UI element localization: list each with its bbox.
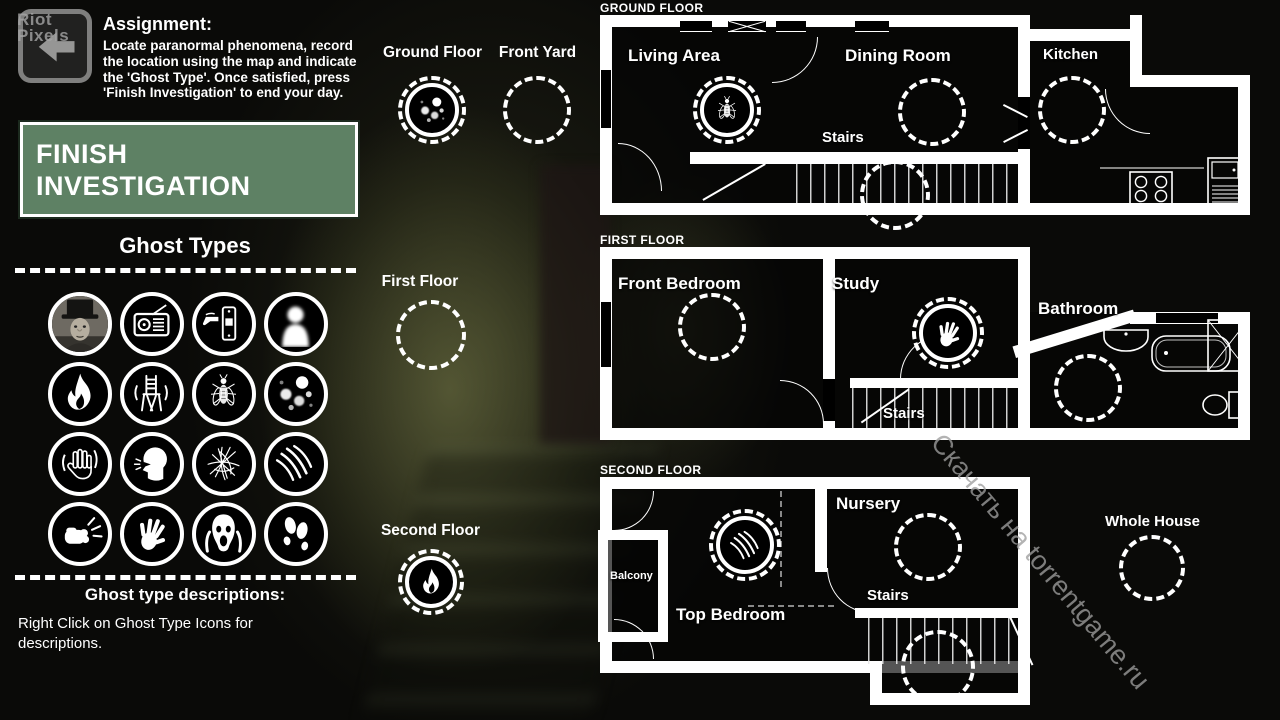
stair-treads xyxy=(852,388,1018,428)
riot-pixels-watermark: Riot Pixels xyxy=(17,12,69,44)
ghost-type-touch[interactable] xyxy=(48,432,112,496)
marker-nursery[interactable] xyxy=(894,513,962,581)
door-gap xyxy=(823,379,835,421)
bedroom-nursery-wall xyxy=(815,489,827,572)
window xyxy=(680,20,712,32)
marker-ground-floor[interactable] xyxy=(398,76,466,144)
ghost-type-claw-scratches[interactable] xyxy=(264,432,328,496)
window-x xyxy=(728,20,766,32)
ghost-type-fire[interactable] xyxy=(48,362,112,426)
marker-whole-house[interactable] xyxy=(1119,535,1185,601)
ghost-type-orbs[interactable] xyxy=(264,362,328,426)
marker-first-floor[interactable] xyxy=(396,300,466,370)
fire-icon xyxy=(405,556,457,608)
map-label-whole-house: Whole House xyxy=(1085,513,1220,530)
kitchen-fixtures xyxy=(1100,150,1250,212)
ghost-descriptions-hint: Right Click on Ghost Type Icons for desc… xyxy=(18,614,294,654)
ghost-descriptions-heading: Ghost type descriptions: xyxy=(0,585,370,605)
first-floor-plan: Front Bedroom Study Bathroom Stairs xyxy=(600,247,1250,440)
marker-front-yard[interactable] xyxy=(503,76,571,144)
room-label-stairs: Stairs xyxy=(822,129,864,146)
map-label-front-yard: Front Yard xyxy=(470,44,605,62)
ghost-type-footprints[interactable] xyxy=(264,502,328,566)
ground-floor-title: GROUND FLOOR xyxy=(600,1,703,15)
room-label-study: Study xyxy=(832,274,879,294)
ghost-type-flies[interactable] xyxy=(192,362,256,426)
marker-second-floor[interactable] xyxy=(398,549,464,615)
room-label-bathroom: Bathroom xyxy=(1038,299,1118,319)
orbs-icon xyxy=(405,83,459,137)
marker-top-bedroom[interactable] xyxy=(709,509,781,581)
finish-investigation-button[interactable]: FINISH INVESTIGATION xyxy=(20,122,358,217)
window-left xyxy=(600,302,612,367)
ghost-type-apparition-portrait[interactable] xyxy=(48,292,112,356)
second-floor-title: SECOND FLOOR xyxy=(600,463,701,477)
window-left xyxy=(600,70,612,128)
room-label-front-bedroom: Front Bedroom xyxy=(618,274,741,294)
app-window: Riot Pixels Скачать на torrentgame.ru As… xyxy=(0,0,1280,720)
marker-stairs-second[interactable] xyxy=(901,630,975,704)
ghost-type-handprint[interactable] xyxy=(120,502,184,566)
bathroom-fixtures xyxy=(1098,318,1250,434)
map-label-second-floor: Second Floor xyxy=(358,522,503,540)
second-floor-plan: Balcony Top Bedroom Nursery Stairs xyxy=(600,477,1030,707)
room-label-living-area: Living Area xyxy=(628,46,720,66)
ghost-type-scribbles[interactable] xyxy=(192,432,256,496)
marker-study[interactable] xyxy=(912,297,984,369)
ghost-type-whisper[interactable] xyxy=(120,432,184,496)
room-label-dining-room: Dining Room xyxy=(845,46,951,66)
ghost-type-radio[interactable] xyxy=(120,292,184,356)
ghost-type-full-body-apparition[interactable] xyxy=(264,292,328,356)
finish-investigation-label: FINISH INVESTIGATION xyxy=(23,138,286,202)
flies-icon xyxy=(700,83,754,137)
stairs-wall xyxy=(690,152,1030,164)
marker-living-area[interactable] xyxy=(693,76,761,144)
marker-stairs-ground[interactable] xyxy=(860,160,930,230)
ghost-type-scream[interactable] xyxy=(192,502,256,566)
assignment-title: Assignment: xyxy=(103,14,212,35)
window xyxy=(776,20,806,32)
map-label-first-floor: First Floor xyxy=(350,273,490,291)
stairs-wall xyxy=(850,378,1018,388)
ghost-type-light-switch[interactable] xyxy=(192,292,256,356)
door-gap xyxy=(1018,97,1030,149)
ground-floor-plan: Living Area Dining Room Stairs Kitchen xyxy=(600,15,1250,215)
first-floor-title: FIRST FLOOR xyxy=(600,233,684,247)
ghost-types-heading: Ghost Types xyxy=(0,233,370,259)
marker-kitchen[interactable] xyxy=(1038,76,1106,144)
room-label-balcony: Balcony xyxy=(610,570,653,582)
marker-front-bedroom[interactable] xyxy=(678,293,746,361)
room-label-stairs: Stairs xyxy=(883,405,925,422)
room-label-nursery: Nursery xyxy=(836,494,900,514)
room-label-top-bedroom: Top Bedroom xyxy=(676,605,785,625)
handprint-icon xyxy=(919,304,977,362)
claw-scratches-icon xyxy=(716,516,774,574)
ghost-type-punch[interactable] xyxy=(48,502,112,566)
stairs-wall xyxy=(855,608,1030,618)
divider-top xyxy=(15,268,356,273)
room-label-stairs: Stairs xyxy=(867,587,909,604)
marker-bathroom[interactable] xyxy=(1054,354,1122,422)
window xyxy=(855,20,889,32)
room-label-kitchen: Kitchen xyxy=(1043,46,1098,63)
assignment-body: Locate paranormal phenomena, record the … xyxy=(103,38,369,101)
ghost-type-grid xyxy=(48,292,328,566)
plan-cutout xyxy=(1130,15,1250,87)
divider-bottom xyxy=(15,575,356,580)
ghost-type-moving-chair[interactable] xyxy=(120,362,184,426)
marker-dining-room[interactable] xyxy=(898,78,966,146)
